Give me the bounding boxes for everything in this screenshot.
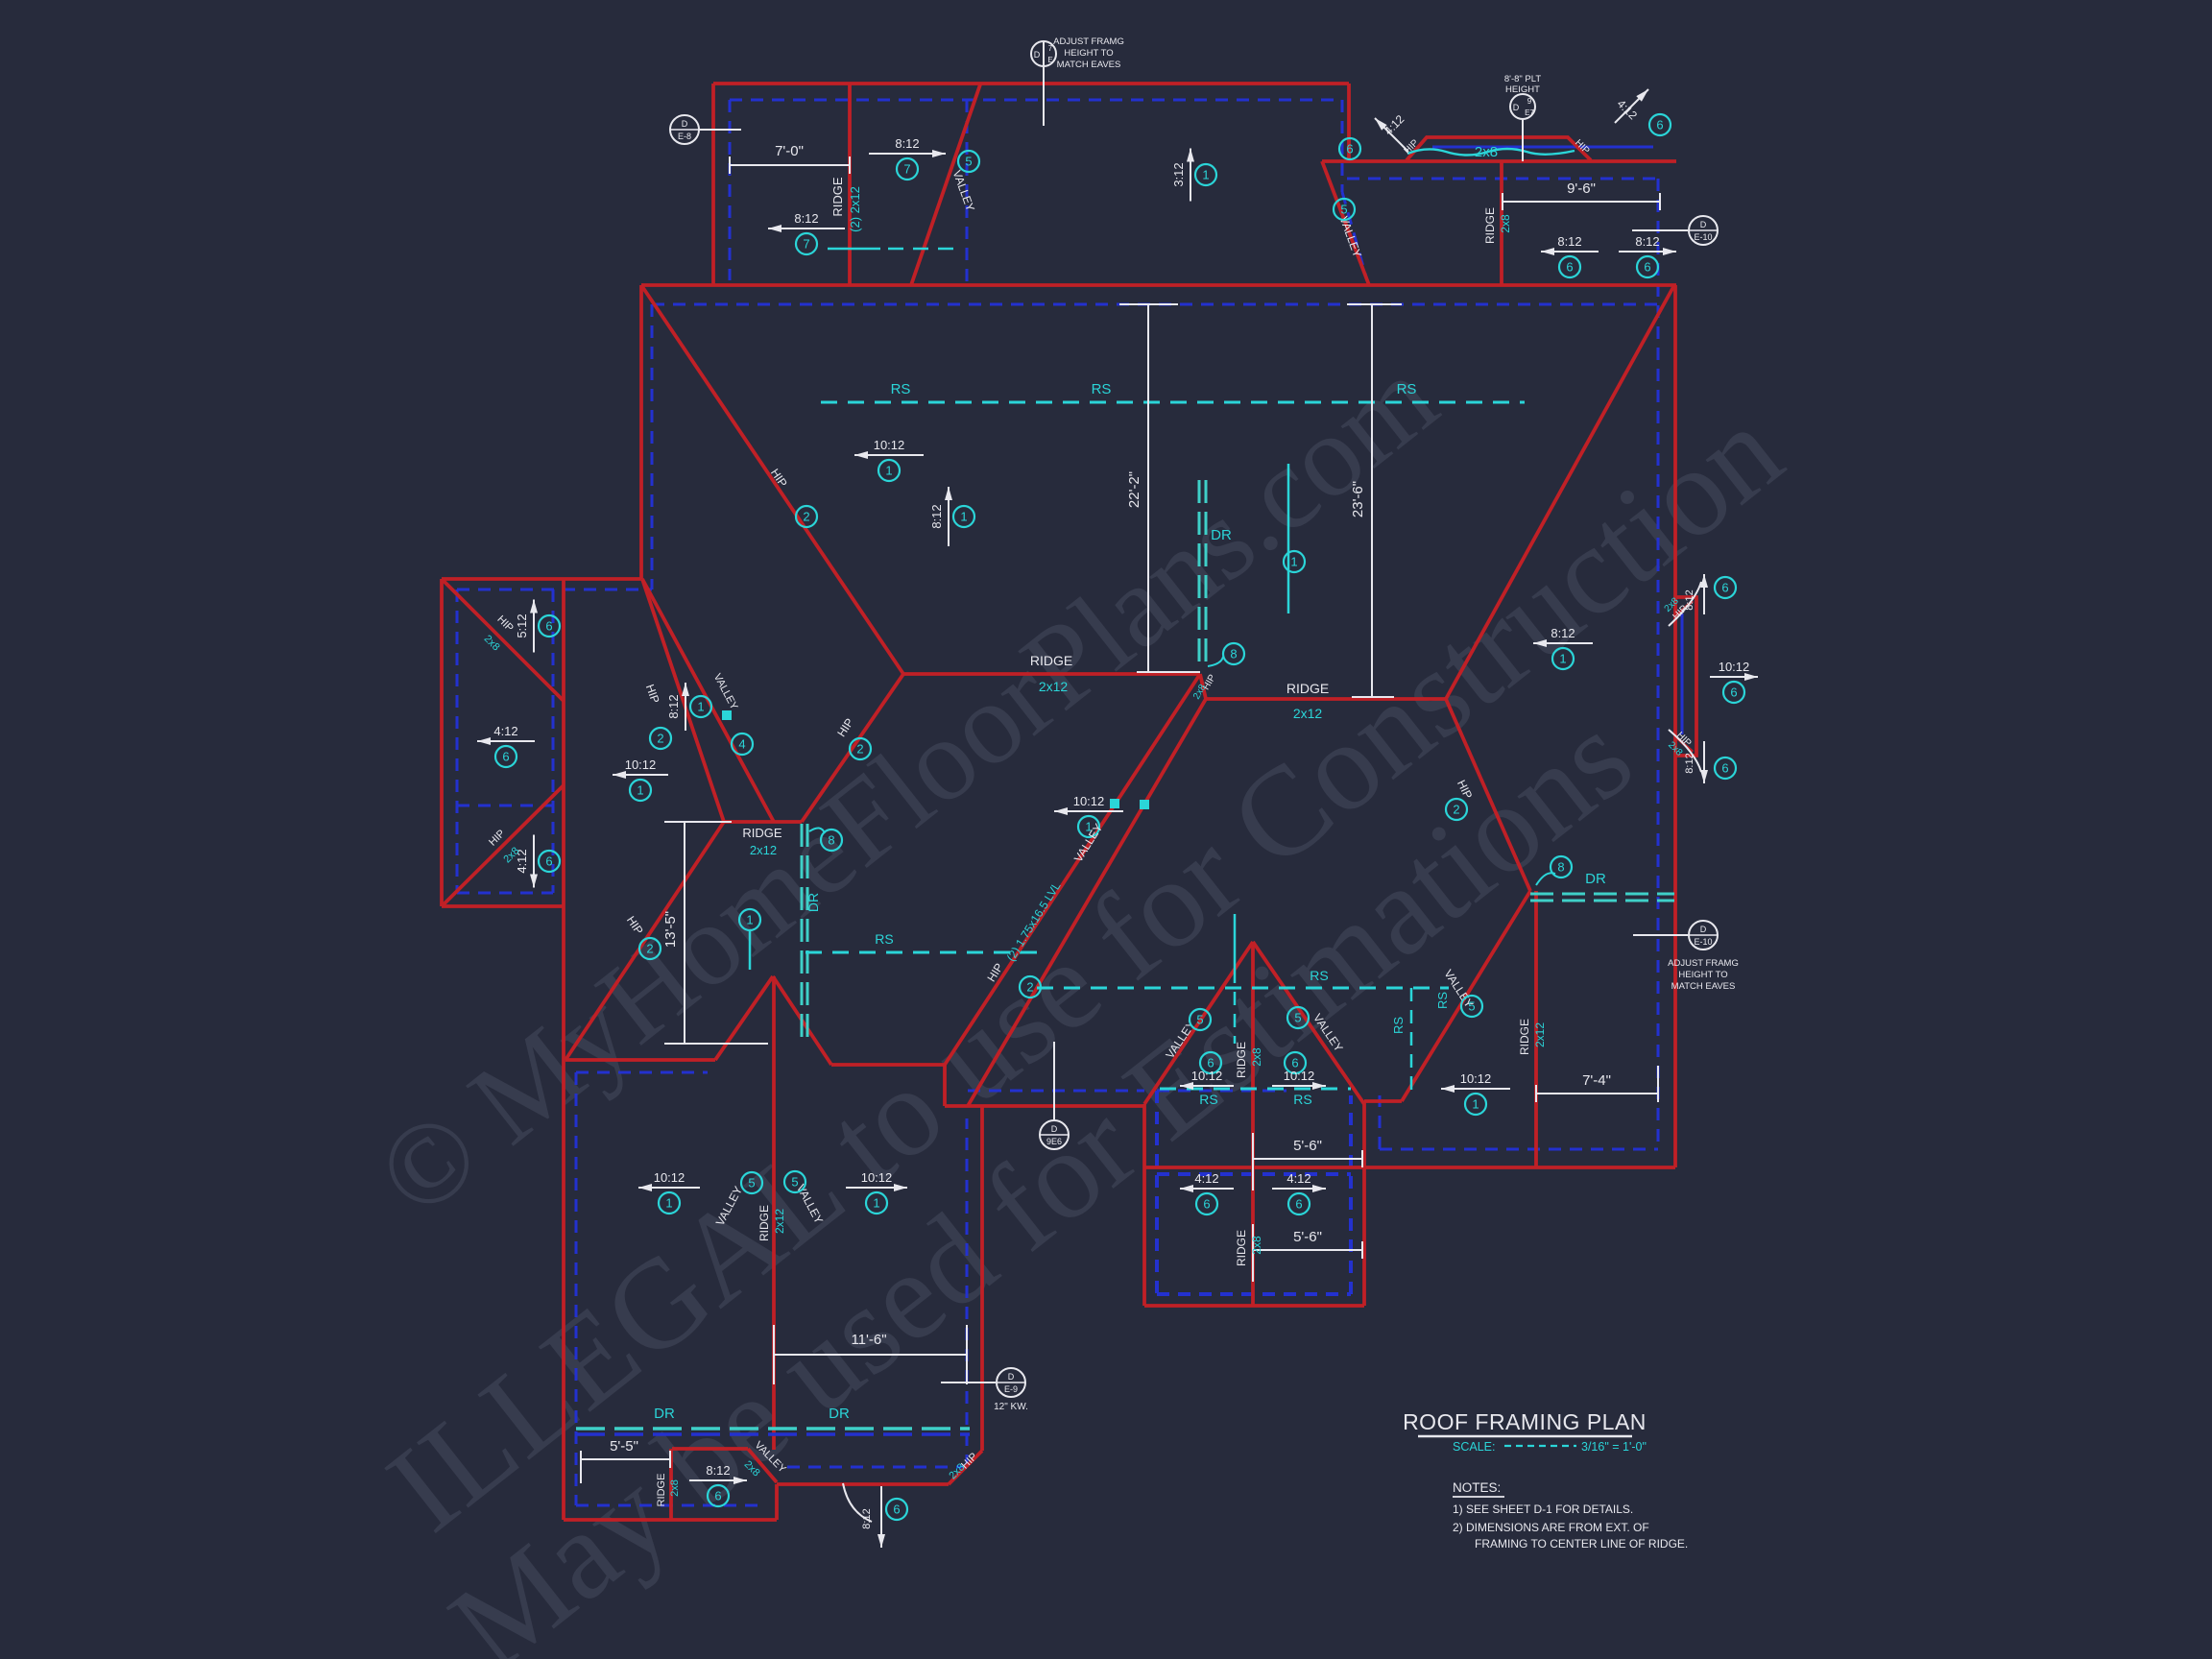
svg-text:22'-2": 22'-2" — [1126, 471, 1142, 508]
svg-text:RIDGE: RIDGE — [742, 826, 782, 840]
svg-text:6: 6 — [1346, 142, 1353, 156]
svg-text:2: 2 — [803, 510, 809, 524]
svg-text:2x8: 2x8 — [1475, 144, 1498, 160]
svg-text:5: 5 — [1196, 1013, 1203, 1027]
svg-text:RS: RS — [1293, 1092, 1311, 1107]
svg-text:4:12: 4:12 — [1286, 1171, 1310, 1186]
svg-text:E-10: E-10 — [1694, 937, 1712, 947]
svg-text:RIDGE: RIDGE — [1286, 681, 1329, 696]
svg-text:MATCH EAVES: MATCH EAVES — [1057, 60, 1121, 70]
svg-text:6: 6 — [1295, 1197, 1302, 1212]
svg-text:12" KW.: 12" KW. — [994, 1402, 1028, 1412]
svg-text:6: 6 — [1721, 761, 1728, 776]
svg-text:D: D — [1700, 925, 1707, 934]
svg-text:8:12: 8:12 — [1557, 234, 1581, 249]
svg-text:5:12: 5:12 — [515, 613, 529, 637]
svg-text:HEIGHT TO: HEIGHT TO — [1064, 48, 1113, 59]
svg-text:2x8: 2x8 — [1499, 214, 1512, 233]
svg-text:2: 2 — [1453, 803, 1459, 817]
svg-text:13'-5": 13'-5" — [662, 911, 679, 948]
svg-text:2) DIMENSIONS ARE FROM EXT. O: 2) DIMENSIONS ARE FROM EXT. OF — [1453, 1521, 1649, 1534]
svg-text:E-8: E-8 — [678, 132, 691, 141]
svg-text:6: 6 — [545, 619, 552, 634]
svg-text:RS: RS — [1397, 381, 1417, 397]
svg-text:8'-8" PLT: 8'-8" PLT — [1504, 74, 1541, 84]
svg-text:MATCH EAVES: MATCH EAVES — [1671, 981, 1736, 992]
svg-text:2: 2 — [1026, 980, 1033, 995]
svg-text:7'-4": 7'-4" — [1582, 1072, 1611, 1089]
svg-text:RIDGE: RIDGE — [1518, 1019, 1531, 1055]
svg-text:ADJUST FRAMG: ADJUST FRAMG — [1053, 36, 1124, 47]
svg-text:5: 5 — [965, 155, 972, 169]
svg-text:6: 6 — [545, 854, 552, 869]
svg-text:D: D — [1051, 1124, 1058, 1134]
svg-text:1: 1 — [637, 783, 643, 798]
svg-text:D: D — [682, 119, 688, 129]
svg-text:2: 2 — [657, 732, 663, 746]
svg-text:8:12: 8:12 — [794, 211, 818, 226]
svg-text:1) SEE SHEET D-1 FOR DETAILS.: 1) SEE SHEET D-1 FOR DETAILS. — [1453, 1503, 1633, 1516]
svg-text:9E6: 9E6 — [1046, 1137, 1062, 1146]
svg-text:6: 6 — [714, 1489, 721, 1503]
svg-text:5: 5 — [1340, 203, 1347, 217]
svg-text:DR: DR — [654, 1406, 675, 1422]
svg-text:2x8: 2x8 — [1250, 1047, 1263, 1067]
svg-text:10:12: 10:12 — [1073, 794, 1105, 808]
svg-text:1: 1 — [746, 913, 753, 927]
svg-text:1: 1 — [885, 464, 892, 478]
svg-text:10:12: 10:12 — [1284, 1069, 1315, 1083]
svg-text:8:12: 8:12 — [1551, 626, 1575, 640]
svg-text:1: 1 — [1559, 652, 1566, 666]
svg-text:SCALE:: SCALE: — [1453, 1440, 1495, 1454]
svg-text:8: 8 — [828, 833, 834, 848]
svg-text:7: 7 — [1048, 44, 1053, 53]
svg-text:8:12: 8:12 — [706, 1463, 730, 1478]
svg-text:23'-6": 23'-6" — [1350, 481, 1366, 517]
svg-text:10:12: 10:12 — [1191, 1069, 1223, 1083]
svg-text:HEIGHT TO: HEIGHT TO — [1678, 970, 1727, 980]
svg-text:2x12: 2x12 — [773, 1209, 786, 1234]
svg-text:DR: DR — [1211, 527, 1232, 543]
svg-text:E7: E7 — [1525, 108, 1534, 117]
svg-text:5'-6": 5'-6" — [1293, 1229, 1322, 1245]
svg-text:4:12: 4:12 — [493, 724, 517, 738]
svg-text:11'-6": 11'-6" — [851, 1332, 886, 1348]
svg-text:E: E — [1047, 56, 1052, 64]
svg-text:1: 1 — [1202, 168, 1209, 182]
svg-text:8: 8 — [1557, 860, 1564, 875]
svg-text:D: D — [1034, 50, 1041, 60]
svg-text:2x12: 2x12 — [1293, 706, 1323, 721]
svg-text:4: 4 — [738, 737, 745, 752]
svg-text:1: 1 — [1472, 1097, 1479, 1112]
svg-text:D: D — [1700, 220, 1707, 229]
svg-text:1: 1 — [1290, 555, 1297, 569]
svg-text:2: 2 — [646, 942, 653, 956]
svg-text:8:12: 8:12 — [666, 694, 681, 718]
svg-text:E-9: E-9 — [1004, 1384, 1018, 1394]
svg-text:ADJUST FRAMG: ADJUST FRAMG — [1668, 958, 1739, 969]
svg-text:7: 7 — [803, 237, 809, 252]
svg-text:6: 6 — [1644, 260, 1650, 275]
svg-text:RS: RS — [891, 381, 911, 397]
svg-text:6: 6 — [1656, 118, 1663, 132]
svg-text:ROOF FRAMING PLAN: ROOF FRAMING PLAN — [1403, 1409, 1647, 1434]
svg-text:10:12: 10:12 — [625, 757, 657, 772]
svg-text:D: D — [1008, 1372, 1015, 1382]
svg-text:RS: RS — [875, 931, 893, 947]
svg-text:1: 1 — [697, 700, 704, 714]
svg-text:2x12: 2x12 — [1533, 1022, 1547, 1047]
svg-text:D: D — [1513, 103, 1520, 112]
svg-text:8:12: 8:12 — [895, 136, 919, 151]
svg-text:RS: RS — [1391, 1017, 1406, 1034]
svg-text:DR: DR — [805, 893, 821, 912]
svg-text:NOTES:: NOTES: — [1453, 1480, 1501, 1495]
svg-text:RS: RS — [1199, 1092, 1217, 1107]
svg-text:DR: DR — [1585, 871, 1606, 887]
svg-text:6: 6 — [893, 1503, 900, 1517]
svg-text:RS: RS — [1435, 992, 1450, 1009]
svg-text:RIDGE: RIDGE — [1483, 207, 1497, 244]
svg-text:9'-6": 9'-6" — [1567, 180, 1596, 197]
svg-text:9: 9 — [1527, 97, 1532, 106]
svg-text:RIDGE: RIDGE — [1030, 653, 1072, 668]
svg-text:8: 8 — [1230, 647, 1237, 661]
svg-text:8:12: 8:12 — [1635, 234, 1659, 249]
svg-text:2x12: 2x12 — [750, 843, 777, 857]
svg-text:RIDGE: RIDGE — [830, 177, 845, 217]
svg-text:2: 2 — [856, 742, 863, 757]
svg-text:4:12: 4:12 — [1194, 1171, 1218, 1186]
svg-text:10:12: 10:12 — [1460, 1071, 1492, 1086]
svg-text:1: 1 — [873, 1196, 879, 1211]
svg-text:10:12: 10:12 — [861, 1170, 893, 1185]
svg-text:8:12: 8:12 — [929, 504, 944, 528]
svg-text:6: 6 — [1566, 260, 1573, 275]
svg-text:RIDGE: RIDGE — [1235, 1042, 1248, 1078]
svg-text:3/16" = 1'-0": 3/16" = 1'-0" — [1581, 1440, 1647, 1454]
svg-text:2x8: 2x8 — [1250, 1236, 1263, 1255]
svg-text:10:12: 10:12 — [874, 438, 905, 452]
svg-text:2x8: 2x8 — [669, 1479, 681, 1497]
svg-text:6: 6 — [1203, 1197, 1210, 1212]
svg-text:RIDGE: RIDGE — [757, 1205, 771, 1241]
svg-text:2x12: 2x12 — [1039, 679, 1069, 694]
svg-text:HEIGHT: HEIGHT — [1505, 84, 1540, 95]
svg-text:RS: RS — [1092, 381, 1112, 397]
svg-text:5: 5 — [791, 1175, 798, 1190]
svg-text:6: 6 — [1721, 581, 1728, 595]
svg-text:5: 5 — [748, 1176, 755, 1190]
svg-text:7: 7 — [903, 162, 910, 177]
svg-text:FRAMING TO CENTER LINE OF RIDG: FRAMING TO CENTER LINE OF RIDGE. — [1475, 1537, 1688, 1551]
svg-text:5: 5 — [1468, 999, 1475, 1014]
svg-text:E-10: E-10 — [1694, 232, 1712, 242]
svg-text:10:12: 10:12 — [654, 1170, 685, 1185]
svg-text:RIDGE: RIDGE — [656, 1474, 667, 1507]
svg-text:7'-0": 7'-0" — [775, 143, 804, 159]
svg-text:1: 1 — [665, 1196, 672, 1211]
svg-text:5'-6": 5'-6" — [1293, 1138, 1322, 1154]
svg-text:5: 5 — [1294, 1011, 1301, 1025]
svg-text:5'-5": 5'-5" — [610, 1438, 638, 1455]
svg-text:RIDGE: RIDGE — [1235, 1230, 1248, 1266]
svg-text:(2) 2x12: (2) 2x12 — [848, 186, 862, 232]
svg-text:6: 6 — [502, 750, 509, 764]
svg-text:1: 1 — [960, 510, 967, 524]
svg-text:6: 6 — [1730, 685, 1737, 700]
svg-text:RS: RS — [1310, 968, 1328, 983]
svg-text:DR: DR — [829, 1406, 850, 1422]
svg-text:10:12: 10:12 — [1719, 660, 1750, 674]
svg-text:3:12: 3:12 — [1171, 162, 1186, 186]
